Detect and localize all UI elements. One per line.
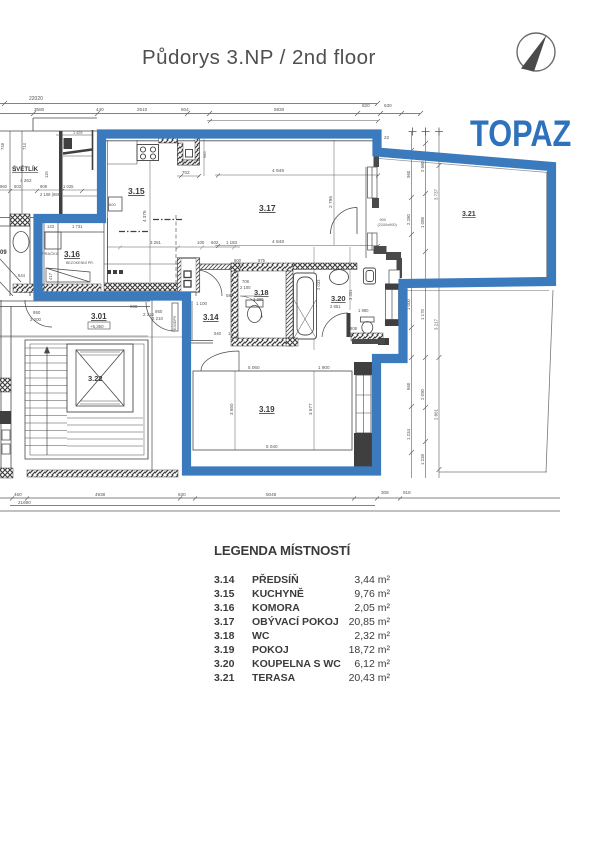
svg-text:504: 504 (181, 107, 189, 112)
svg-text:3 737: 3 737 (434, 188, 439, 200)
svg-text:WC: WC (252, 630, 270, 642)
svg-text:2510: 2510 (137, 107, 148, 112)
svg-text:2 100: 2 100 (240, 285, 251, 290)
svg-text:TOPAZ: TOPAZ (470, 113, 571, 155)
svg-text:5 040: 5 040 (266, 444, 278, 449)
svg-text:460: 460 (14, 492, 22, 497)
svg-text:BEZOKENNÍ PR.: BEZOKENNÍ PR. (66, 261, 94, 265)
svg-text:3.19: 3.19 (214, 644, 235, 656)
svg-text:3.14: 3.14 (203, 313, 219, 322)
svg-text:602: 602 (211, 240, 219, 245)
svg-text:600: 600 (234, 258, 242, 263)
svg-text:4938: 4938 (95, 492, 106, 497)
svg-text:3.19: 3.19 (259, 405, 275, 414)
svg-text:1 183: 1 183 (226, 240, 238, 245)
svg-text:100: 100 (197, 240, 205, 245)
svg-text:950: 950 (155, 309, 163, 314)
svg-text:9,76 m²: 9,76 m² (354, 588, 390, 600)
svg-text:1 234: 1 234 (406, 428, 411, 440)
svg-text:5048: 5048 (266, 492, 277, 497)
svg-text:808: 808 (350, 326, 358, 331)
svg-text:1 025: 1 025 (63, 184, 74, 189)
svg-text:Půdorys 3.NP / 2nd floor: Půdorys 3.NP / 2nd floor (142, 46, 376, 69)
svg-text:3 677: 3 677 (308, 403, 313, 415)
svg-text:(2100x900): (2100x900) (378, 223, 398, 227)
svg-text:3 331: 3 331 (348, 289, 353, 300)
svg-text:3.21: 3.21 (462, 211, 476, 218)
svg-text:2 580: 2 580 (420, 160, 425, 172)
svg-text:20,85 m²: 20,85 m² (349, 616, 391, 628)
svg-text:POKOJ: POKOJ (252, 644, 289, 656)
svg-text:603: 603 (14, 184, 22, 189)
svg-text:3 217: 3 217 (434, 318, 439, 330)
svg-text:985: 985 (202, 151, 207, 158)
svg-text:540: 540 (214, 331, 222, 336)
svg-text:3.18: 3.18 (214, 630, 235, 642)
svg-text:21690: 21690 (18, 500, 31, 505)
svg-text:308: 308 (381, 490, 389, 495)
svg-text:+6,360: +6,360 (90, 324, 104, 329)
svg-text:20,43 m²: 20,43 m² (349, 672, 391, 684)
svg-text:E30DP9: E30DP9 (173, 316, 177, 330)
svg-text:143: 143 (47, 224, 55, 229)
svg-text:2 033: 2 033 (316, 279, 321, 290)
svg-text:4 376: 4 376 (142, 210, 147, 222)
svg-text:PRAČKA: PRAČKA (42, 251, 59, 256)
svg-text:3 650: 3 650 (229, 403, 234, 415)
svg-text:3580: 3580 (34, 107, 45, 112)
svg-text:22: 22 (384, 135, 390, 140)
svg-text:600: 600 (109, 202, 116, 207)
svg-text:1 170: 1 170 (420, 308, 425, 320)
svg-text:3.20: 3.20 (331, 294, 346, 303)
svg-text:975: 975 (258, 258, 266, 263)
svg-text:3.20: 3.20 (214, 658, 235, 670)
svg-text:2 108 (989): 2 108 (989) (40, 192, 62, 197)
svg-text:3.16: 3.16 (64, 250, 80, 259)
svg-text:820: 820 (362, 103, 370, 108)
svg-text:09: 09 (0, 250, 7, 256)
svg-text:2 280: 2 280 (406, 213, 411, 225)
svg-text:3.15: 3.15 (214, 588, 235, 600)
svg-text:3.17: 3.17 (214, 616, 235, 628)
svg-text:900: 900 (380, 218, 386, 222)
svg-text:918: 918 (403, 490, 411, 495)
svg-text:3.17: 3.17 (259, 203, 276, 213)
svg-text:3.16: 3.16 (214, 602, 235, 614)
svg-text:2 861: 2 861 (434, 408, 439, 420)
svg-text:KOUPELNA S WC: KOUPELNA S WC (252, 658, 341, 670)
svg-text:3.14: 3.14 (214, 574, 235, 586)
svg-text:1 425: 1 425 (73, 131, 83, 135)
svg-text:748: 748 (0, 142, 5, 150)
svg-text:OBÝVACÍ POKOJ: OBÝVACÍ POKOJ (252, 615, 339, 628)
svg-text:4 848: 4 848 (272, 239, 284, 245)
svg-text:18,72 m²: 18,72 m² (349, 644, 391, 656)
svg-text:2 200: 2 200 (30, 317, 42, 322)
svg-text:1 100: 1 100 (196, 301, 208, 306)
svg-text:1 900: 1 900 (318, 365, 330, 370)
svg-text:630: 630 (178, 492, 186, 497)
svg-text:22020: 22020 (29, 96, 43, 102)
svg-text:5 060: 5 060 (248, 365, 260, 370)
svg-text:1 238: 1 238 (420, 453, 425, 465)
svg-text:714: 714 (22, 142, 27, 150)
svg-text:4 262: 4 262 (20, 178, 32, 183)
svg-text:2 796: 2 796 (328, 196, 334, 208)
svg-text:PŘEDSÍŇ: PŘEDSÍŇ (252, 573, 299, 586)
svg-text:708: 708 (242, 279, 250, 284)
svg-text:2 090: 2 090 (420, 388, 425, 400)
svg-text:SVĚTLÍK: SVĚTLÍK (12, 165, 39, 173)
svg-text:950: 950 (33, 310, 41, 315)
svg-text:702: 702 (182, 170, 190, 175)
svg-text:630: 630 (384, 103, 392, 108)
svg-text:3 251: 3 251 (150, 240, 162, 245)
svg-text:KOMORA: KOMORA (252, 602, 300, 614)
svg-text:KUCHYNĚ: KUCHYNĚ (252, 587, 304, 600)
svg-text:2 851: 2 851 (330, 304, 341, 309)
svg-text:115: 115 (44, 171, 49, 178)
svg-text:860: 860 (406, 382, 411, 390)
svg-text:2,32 m²: 2,32 m² (354, 630, 390, 642)
svg-text:1 731: 1 731 (72, 224, 83, 229)
svg-text:3,44 m²: 3,44 m² (354, 574, 390, 586)
svg-text:908: 908 (40, 184, 48, 189)
svg-text:4 949: 4 949 (272, 168, 284, 174)
svg-text:LEGENDA MÍSTNOSTÍ: LEGENDA MÍSTNOSTÍ (214, 543, 351, 558)
svg-text:1 088: 1 088 (420, 216, 425, 228)
svg-text:6,12 m²: 6,12 m² (354, 658, 390, 670)
svg-text:3.22: 3.22 (88, 374, 103, 383)
svg-text:1 980: 1 980 (358, 308, 369, 313)
svg-text:860: 860 (0, 184, 8, 189)
svg-text:2,05 m²: 2,05 m² (354, 602, 390, 614)
svg-text:2 215: 2 215 (143, 312, 155, 317)
svg-text:3.15: 3.15 (128, 186, 145, 196)
svg-text:3.18: 3.18 (254, 288, 269, 297)
svg-text:440: 440 (96, 107, 104, 112)
svg-text:3.01: 3.01 (91, 312, 107, 321)
svg-text:960: 960 (406, 170, 411, 178)
svg-text:544: 544 (18, 273, 26, 278)
svg-text:3.21: 3.21 (214, 672, 235, 684)
svg-text:5930: 5930 (274, 107, 285, 112)
svg-text:417: 417 (48, 272, 53, 280)
svg-text:TERASA: TERASA (252, 672, 296, 684)
svg-text:900: 900 (130, 304, 138, 309)
